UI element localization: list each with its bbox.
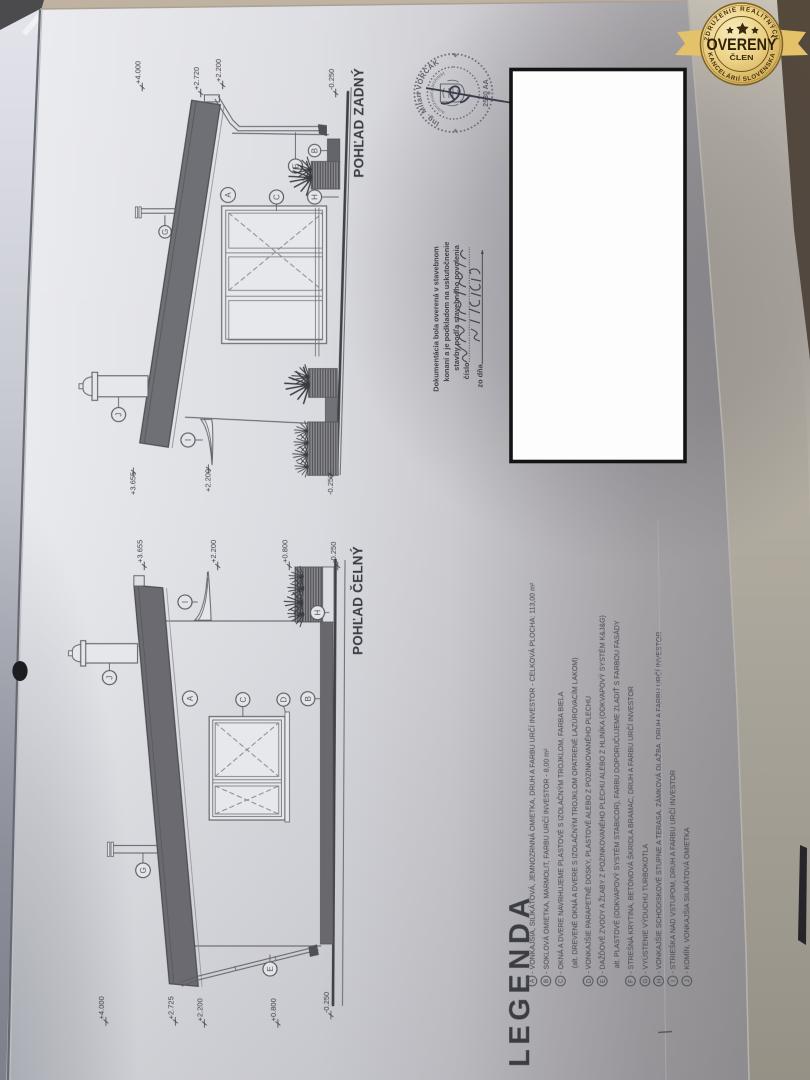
svg-text:zo dňa: zo dňa	[475, 363, 484, 387]
svg-text:I: I	[670, 980, 677, 982]
svg-text:-0.250: -0.250	[322, 992, 331, 1013]
svg-text:+3.655: +3.655	[128, 472, 137, 495]
svg-text:POHĽAD ČELNÝ: POHĽAD ČELNÝ	[351, 546, 366, 655]
svg-text:+2.720: +2.720	[192, 67, 201, 90]
svg-text:-0.250: -0.250	[326, 474, 335, 495]
svg-text:-0.250: -0.250	[327, 69, 336, 90]
svg-text:G: G	[642, 978, 649, 983]
svg-text:- OKNÁ A DVERE NAVRHUJEME PLA: - OKNÁ A DVERE NAVRHUJEME PLASTOVÉ S IZO…	[556, 691, 565, 973]
svg-text:+2.200: +2.200	[209, 540, 218, 563]
svg-text:- VONKAJŠIE PARAPETNÉ DOSKY, P: - VONKAJŠIE PARAPETNÉ DOSKY, PLASTOVÉ AL…	[584, 696, 593, 974]
svg-text:F: F	[628, 979, 635, 983]
svg-text:ČLEN: ČLEN	[730, 53, 754, 62]
svg-text:D: D	[279, 696, 288, 702]
svg-text:D: D	[586, 978, 593, 983]
svg-text:E: E	[600, 979, 607, 983]
svg-text:alt. PLASTOVÉ (ODKVAPOVÝ SYSTÉ: alt. PLASTOVÉ (ODKVAPOVÝ SYSTÉM STABICOR…	[612, 620, 621, 968]
svg-text:-0.250: -0.250	[329, 542, 338, 563]
svg-text:+3.655: +3.655	[135, 540, 144, 563]
svg-text:E: E	[291, 163, 300, 168]
svg-text:číslo: číslo	[462, 362, 471, 379]
svg-text:E: E	[266, 966, 275, 971]
svg-text:- VYÚSTENIE VÝDUCHU TURBOKOTLA: - VYÚSTENIE VÝDUCHU TURBOKOTLA	[641, 844, 650, 974]
svg-text:H: H	[311, 194, 320, 200]
svg-text:+2.200: +2.200	[214, 59, 223, 82]
svg-text:J: J	[105, 676, 114, 680]
svg-text:I: I	[181, 601, 190, 603]
svg-text:- STRIEŠKA NAD VSTUPOM, DRUH A: - STRIEŠKA NAD VSTUPOM, DRUH A FARBU URČ…	[668, 770, 677, 974]
svg-text:J: J	[684, 979, 691, 982]
svg-text:C: C	[239, 696, 248, 702]
svg-text:H: H	[656, 979, 663, 983]
svg-text:Dokumentácia bola overená v st: Dokumentácia bola overená v stavebnom	[432, 246, 441, 392]
svg-text:C: C	[558, 978, 565, 983]
svg-text:(alt. DREVENÉ OKNÁ A DVERE S I: (alt. DREVENÉ OKNÁ A DVERE S IZOLAČNÝM T…	[570, 658, 579, 969]
svg-text:B: B	[310, 148, 319, 153]
svg-text:+4.000: +4.000	[133, 61, 142, 84]
svg-text:konaní a je podkladom na uskut: konaní a je podkladom na uskutočnenie	[442, 242, 451, 382]
svg-text:+2.200: +2.200	[203, 469, 212, 492]
svg-text:B: B	[543, 979, 550, 983]
svg-text:A: A	[224, 192, 233, 198]
svg-text:+0.800: +0.800	[269, 998, 278, 1021]
svg-text:+2.200: +2.200	[195, 998, 204, 1021]
svg-text:- STREŠNÁ KRYTINA, BETÓNOVÁ ŠK: - STREŠNÁ KRYTINA, BETÓNOVÁ ŠKRIDLA BRAM…	[626, 686, 635, 974]
svg-text:- VONKAJŠIA, SILIKÁTOVÁ, JEMNO: - VONKAJŠIA, SILIKÁTOVÁ, JEMNOZRNNÁ OMIE…	[528, 582, 537, 974]
svg-text:OVERENÝ: OVERENÝ	[707, 35, 778, 54]
svg-text:B: B	[304, 696, 313, 701]
svg-text:J: J	[114, 413, 123, 417]
svg-text:- DAŽĎOVÉ ZVODY A ŽĽABY Z POZI: - DAŽĎOVÉ ZVODY A ŽĽABY Z POZINKOVANÉHO …	[598, 615, 607, 974]
svg-text:+4.000: +4.000	[97, 996, 106, 1019]
svg-text:+0.800: +0.800	[280, 540, 289, 563]
svg-text:H: H	[313, 609, 322, 615]
svg-text:+2.725: +2.725	[166, 996, 175, 1019]
svg-text:G: G	[139, 867, 148, 873]
svg-text:C: C	[272, 194, 281, 200]
svg-text:POHĽAD ZADNÝ: POHĽAD ZADNÝ	[352, 68, 367, 178]
svg-text:A: A	[186, 695, 195, 701]
svg-text:- SOKLOVÁ OMIETKA, MARMOLIT, F: - SOKLOVÁ OMIETKA, MARMOLIT, FARBU URČÍ …	[542, 748, 551, 974]
svg-text:- KOMÍN, VONKAJŠIA SILIKÁTOVÁ: - KOMÍN, VONKAJŠIA SILIKÁTOVÁ OMIETKA	[682, 827, 691, 973]
svg-text:G: G	[161, 229, 170, 235]
svg-text:I: I	[184, 439, 193, 441]
